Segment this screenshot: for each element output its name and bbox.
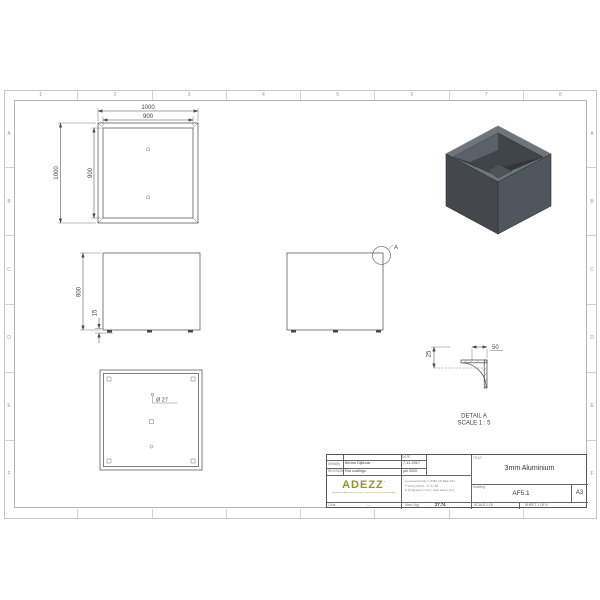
mass-label: Mass (kg): <box>405 504 420 507</box>
title-label: TITLE <box>473 457 482 460</box>
detail-callout-circle <box>373 247 391 265</box>
adezz-logo: ADEZZ’ METALEN MAATWERK PRODUCTEN VOOR P… <box>327 475 401 502</box>
drawn-value: Benno Dijkhuis <box>345 462 370 466</box>
dim-detail-50: 50 <box>492 345 499 351</box>
revision-value: Ral coatings <box>345 470 366 474</box>
scale-text: SCALE:1:15 <box>474 504 493 507</box>
drawn-date: 7-11-2017 <box>403 462 420 466</box>
drawing-views: 1000 900 1000 900 800 15 A <box>0 0 600 600</box>
title-block: DATE DRAWN Benno Dijkhuis 7-11-2017 REVI… <box>326 454 587 508</box>
dim-left-1000: 1000 <box>54 166 60 180</box>
mass-value: 27.74 <box>435 503 445 507</box>
dim-top-900: 900 <box>143 114 154 120</box>
company-tagline: METALEN MAATWERK PRODUCTEN VOOR PROFESSI… <box>327 492 401 494</box>
drawn-label: DRAWN <box>328 463 340 466</box>
revision-label: REVISION <box>328 470 343 473</box>
date-label: DATE <box>402 456 410 459</box>
detail-a-view: 25 50 DETAIL A SCALE 1 : 5 <box>427 345 504 427</box>
detail-callout-label: A <box>394 245 398 251</box>
color-label: Color <box>328 504 336 507</box>
company-name: ADEZZ <box>342 479 384 491</box>
address-line: E info@adezz.com / www.adezz.com <box>405 488 469 493</box>
dim-front-15: 15 <box>93 309 99 316</box>
side-view: A <box>287 245 398 333</box>
dim-top-1000: 1000 <box>141 105 155 111</box>
detail-title: DETAIL A <box>461 414 487 420</box>
paper-size: A3 <box>571 490 588 496</box>
revision-date: juli 2020 <box>403 470 417 474</box>
dim-left-900: 900 <box>88 167 94 178</box>
trademark-mark: ’ <box>384 479 386 484</box>
drawing-label: Drawing. <box>473 486 486 489</box>
drawing-title: 3mm Aluminium <box>471 465 588 472</box>
top-view: 1000 900 1000 900 <box>54 105 198 223</box>
iso-view <box>446 126 551 234</box>
company-address: Leeuwerikstraat 4, 8483 AD Balk (NL) T 0… <box>405 479 469 493</box>
dim-detail-25: 25 <box>427 350 433 357</box>
front-view: 800 15 <box>77 253 201 343</box>
color-value: --- <box>367 504 371 508</box>
detail-scale: SCALE 1 : 5 <box>457 421 491 427</box>
sheet-text: SHEET 1 OF 6 <box>525 504 548 507</box>
dim-hole-diameter: Ø 27 <box>156 398 168 404</box>
dim-front-800: 800 <box>77 286 83 297</box>
bottom-view: Ø 27 <box>100 370 202 470</box>
drawing-number: AF5.1 <box>471 490 571 497</box>
